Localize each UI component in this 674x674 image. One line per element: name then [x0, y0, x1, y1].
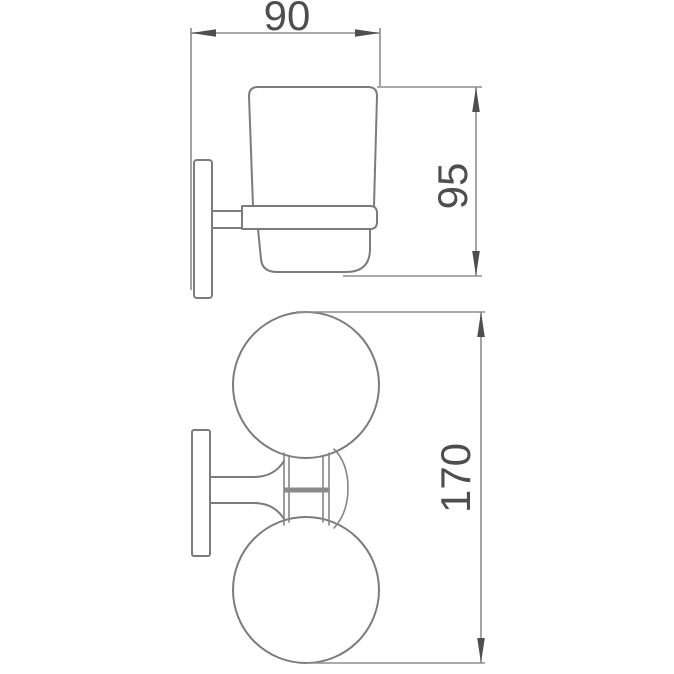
top-view-arm-edge-lower: [210, 503, 284, 519]
side-view-holder-ring: [242, 206, 377, 229]
dimension-span-arrow-bottom-icon: [477, 638, 485, 663]
dimension-height-arrow-top-icon: [472, 87, 480, 112]
top-view-tumbler-2: [233, 517, 379, 663]
dimension-span-arrow-top-icon: [477, 312, 485, 337]
top-view-tumbler-1: [233, 312, 379, 458]
dimension-height: 95: [343, 87, 482, 276]
dimension-width-label: 90: [264, 0, 311, 39]
side-view-arm: [212, 211, 242, 228]
dimension-height-label: 95: [429, 163, 476, 210]
top-view-bracket-outer-curve: [334, 449, 348, 528]
dimension-width-arrow-left-icon: [191, 29, 216, 37]
side-view-wall-plate: [194, 160, 212, 298]
top-view: [192, 312, 379, 663]
dimension-height-arrow-bottom-icon: [472, 251, 480, 276]
technical-drawing: 90 95 170: [0, 0, 674, 674]
top-view-wall-plate: [192, 430, 210, 556]
top-view-arm-edge-upper: [210, 461, 284, 477]
side-view: [194, 87, 377, 298]
drawing-canvas: 90 95 170: [0, 0, 674, 674]
dimension-width-arrow-right-icon: [355, 29, 380, 37]
side-view-tumbler-upper: [249, 87, 377, 206]
dimension-width: 90: [191, 0, 380, 290]
side-view-tumbler-lower: [258, 229, 370, 272]
dimension-span-label: 170: [432, 443, 479, 513]
